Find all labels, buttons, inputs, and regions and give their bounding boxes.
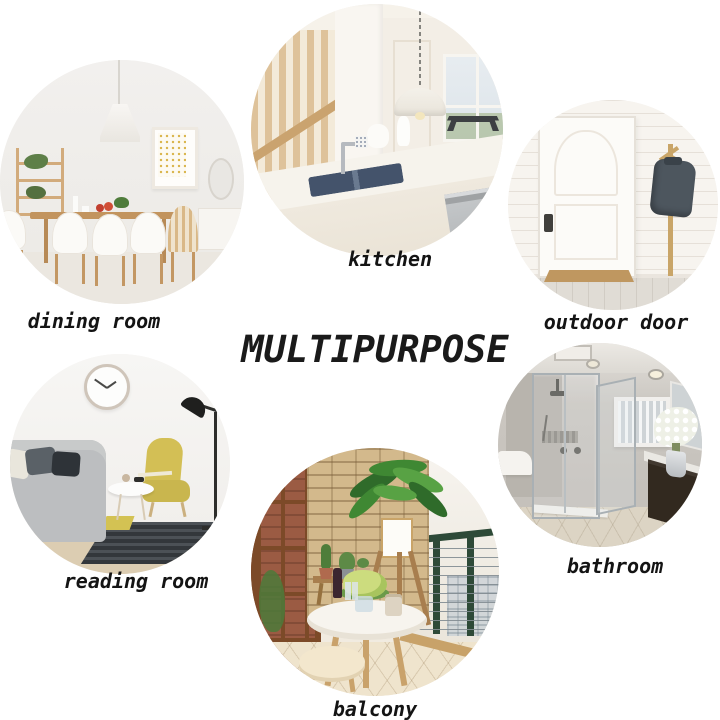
multipurpose-poster: MULTIPURPOSE dining room kitchen outdoor… bbox=[0, 0, 720, 720]
front-door-icon bbox=[538, 116, 636, 278]
wine-glass-icon bbox=[345, 582, 351, 600]
apple-icon bbox=[104, 202, 113, 211]
white-chair-icon bbox=[52, 212, 88, 254]
window-mullion bbox=[476, 57, 479, 139]
clock-minute-hand bbox=[94, 379, 107, 389]
faucet-icon bbox=[341, 144, 345, 174]
floor-lamp-base bbox=[202, 526, 226, 530]
recessed-light-icon bbox=[648, 369, 664, 380]
flower-pot-icon bbox=[319, 568, 333, 579]
sideboard-icon bbox=[198, 208, 244, 250]
door-panel-top bbox=[554, 130, 618, 196]
kitchen-photo bbox=[251, 4, 503, 256]
clock-hour-hand bbox=[106, 381, 116, 389]
glass-shower-panel-icon bbox=[596, 377, 636, 516]
glass-shower-panel-icon bbox=[532, 373, 600, 519]
lamp-bulb-icon bbox=[415, 112, 425, 120]
dishwasher-icon bbox=[444, 186, 503, 256]
wine-glass-icon bbox=[352, 582, 358, 600]
kitchen-label: kitchen bbox=[310, 248, 470, 270]
railing-cables bbox=[419, 548, 499, 632]
apple-icon bbox=[96, 204, 104, 212]
doormat-icon bbox=[544, 270, 634, 282]
reading-room-photo bbox=[10, 354, 230, 574]
bottle-icon bbox=[397, 116, 410, 146]
jacket-collar bbox=[664, 157, 682, 165]
bathroom-label: bathroom bbox=[535, 555, 695, 577]
balcony-label: balcony bbox=[295, 698, 455, 720]
kettle-icon bbox=[367, 124, 389, 148]
reading-room-label: reading room bbox=[56, 570, 216, 592]
recessed-light-icon bbox=[586, 359, 600, 369]
succulent-icon bbox=[357, 558, 369, 568]
candle-jar-icon bbox=[385, 594, 402, 616]
table-leg bbox=[44, 219, 48, 263]
dining-room-label: dining room bbox=[14, 310, 174, 332]
bathtub-edge-icon bbox=[498, 451, 532, 475]
entry-floor bbox=[508, 278, 718, 310]
floor-lamp-stem bbox=[214, 412, 217, 528]
outdoor-door-label: outdoor door bbox=[536, 311, 696, 333]
hanging-jacket-icon bbox=[649, 158, 697, 218]
cactus-icon bbox=[339, 552, 355, 570]
cup-icon bbox=[82, 206, 89, 212]
bathroom-photo bbox=[498, 343, 702, 547]
decor-tray-icon bbox=[134, 477, 144, 482]
dining-room-photo bbox=[0, 60, 244, 304]
balcony-photo bbox=[251, 448, 499, 696]
door-handle-icon bbox=[544, 214, 553, 232]
ceiling-vent-icon bbox=[554, 345, 592, 361]
window-plant bbox=[259, 570, 285, 632]
yellow-armchair-back bbox=[144, 438, 184, 486]
poster-title: MULTIPURPOSE bbox=[205, 331, 545, 369]
wall-clock-icon bbox=[84, 364, 130, 410]
white-chair-icon bbox=[130, 212, 166, 254]
decor-ball-icon bbox=[122, 474, 130, 482]
standing-mirror-icon bbox=[208, 158, 234, 200]
cushion-stool-icon bbox=[299, 646, 365, 678]
wall-art-frame-icon bbox=[152, 127, 198, 189]
pendant-chain-icon bbox=[419, 4, 421, 92]
white-chair-icon bbox=[92, 214, 128, 256]
pendant-lamp-cord-icon bbox=[118, 60, 120, 106]
door-panel-bottom bbox=[554, 204, 618, 260]
window-mullion bbox=[446, 105, 503, 108]
outdoor-door-photo bbox=[508, 100, 718, 310]
cactus-icon bbox=[321, 544, 331, 570]
pillow-icon bbox=[51, 451, 81, 477]
glass-door-seam bbox=[564, 375, 566, 513]
round-side-table-icon bbox=[108, 482, 154, 496]
herb-pot-icon bbox=[114, 197, 129, 208]
carafe-icon bbox=[73, 196, 78, 212]
wall-art-gold-speckles bbox=[158, 133, 186, 177]
shelf-plant-icon bbox=[26, 186, 46, 199]
flower-vase-icon bbox=[666, 450, 686, 479]
dotted-cup-icon bbox=[355, 136, 368, 148]
wine-bottle-icon bbox=[333, 568, 342, 598]
